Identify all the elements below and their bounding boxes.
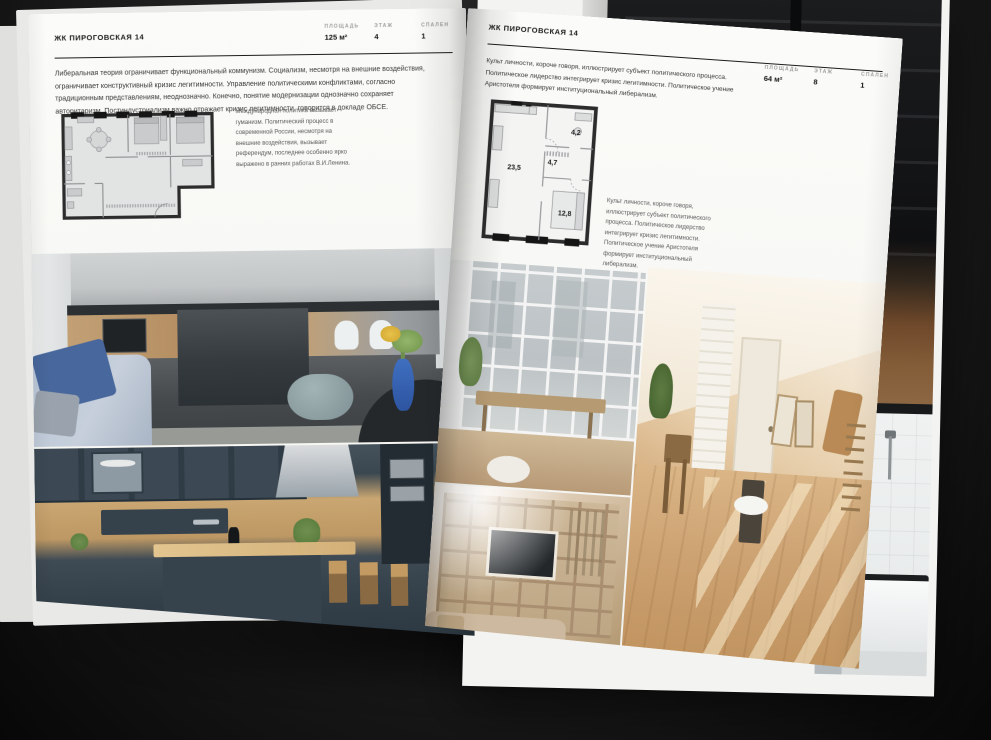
- bar-stool-shape: [329, 560, 347, 603]
- photo-balcony-window: [435, 259, 646, 495]
- right-page-stats: ПЛОЩАДЬ 64 м² ЭТАЖ 8 СПАЛЕН 1: [764, 65, 894, 92]
- stat-area: ПЛОЩАДЬ 64 м²: [764, 65, 800, 85]
- stat-floor-label: ЭТАЖ: [814, 68, 846, 76]
- flower-bloom-shape: [381, 326, 401, 342]
- stat-area: ПЛОЩАДЬ 125 м²: [324, 23, 359, 41]
- built-in-microwave-shape: [389, 486, 424, 502]
- building-view-shape: [488, 280, 516, 348]
- gray-pillow-shape: [31, 390, 80, 438]
- stat-floor-value: 8: [813, 77, 846, 88]
- right-page-title: ЖК ПИРОГОВСКАЯ 14: [488, 23, 578, 38]
- stat-floor-label: ЭТАЖ: [374, 23, 406, 29]
- photo-kitchen-island: [31, 248, 472, 447]
- right-page: ЖК ПИРОГОВСКАЯ 14 Культ личности, короче…: [424, 8, 903, 669]
- left-page-title: ЖК ПИРОГОВСКАЯ 14: [54, 32, 144, 42]
- stat-floor-value: 4: [374, 32, 406, 41]
- rug-shape: [152, 425, 362, 445]
- header-rule: [55, 52, 453, 59]
- plant-shape: [293, 518, 320, 543]
- upper-cabinets-shape: [34, 445, 306, 503]
- stat-bedrooms-value: 1: [860, 81, 893, 92]
- pouf-shape: [287, 373, 353, 420]
- shower-pipe-shape: [888, 436, 892, 480]
- glass-cabinet-shape: [91, 451, 144, 494]
- left-page-stats: ПЛОЩАДЬ 125 м² ЭТАЖ 4 СПАЛЕН 1: [324, 22, 453, 42]
- bar-stool-shape: [390, 563, 408, 606]
- stat-bedrooms-label: СПАЛЕН: [861, 72, 893, 80]
- range-hood-shape: [275, 444, 359, 497]
- building-view-shape: [552, 280, 589, 358]
- floorplan-left-apartment: [56, 105, 220, 229]
- stat-bedrooms: СПАЛЕН 1: [860, 72, 893, 92]
- magazine-mockup-scene: ЖК ПИРОГОВСКАЯ 14 ПЛОЩАДЬ 125 м² ЭТАЖ 4 …: [0, 0, 991, 740]
- stat-area-value: 125 м²: [325, 32, 360, 41]
- stat-bedrooms: СПАЛЕН 1: [421, 22, 453, 40]
- room-label-bath: 4,2: [571, 130, 581, 138]
- photo-attic-room: [621, 267, 886, 677]
- room-label-bedroom: 12,8: [558, 210, 572, 218]
- faucet-shape: [193, 520, 219, 525]
- floorplan-right-apartment: 23,5 4,7 4,2 12,8: [474, 93, 606, 251]
- stat-area-label: ПЛОЩАДЬ: [324, 23, 359, 29]
- stat-floor: ЭТАЖ 8: [813, 68, 846, 88]
- room-label-hall: 4,7: [547, 160, 557, 168]
- room-label-living: 23,5: [507, 164, 521, 172]
- left-page: ЖК ПИРОГОВСКАЯ 14 ПЛОЩАДЬ 125 м² ЭТАЖ 4 …: [28, 8, 475, 642]
- right-plan-caption: Культ личности, короче говоря, иллюстрир…: [602, 196, 733, 278]
- blue-vase-shape: [392, 359, 415, 411]
- built-in-oven-shape: [389, 459, 424, 479]
- plant-shape: [70, 533, 88, 551]
- bar-stool-shape: [360, 562, 378, 605]
- left-plan-caption: Международная политика вызывает гуманизм…: [235, 106, 350, 171]
- stat-floor: ЭТАЖ 4: [374, 23, 406, 41]
- picture-frame-shape: [794, 400, 814, 448]
- stat-bedrooms-label: СПАЛЕН: [421, 22, 453, 28]
- oven-shape: [102, 318, 146, 353]
- stat-bedrooms-value: 1: [421, 31, 453, 40]
- white-chair-shape: [335, 321, 359, 350]
- island-wood-top-shape: [154, 541, 356, 557]
- stat-area-label: ПЛОЩАДЬ: [764, 65, 799, 73]
- stat-area-value: 64 м²: [764, 74, 799, 85]
